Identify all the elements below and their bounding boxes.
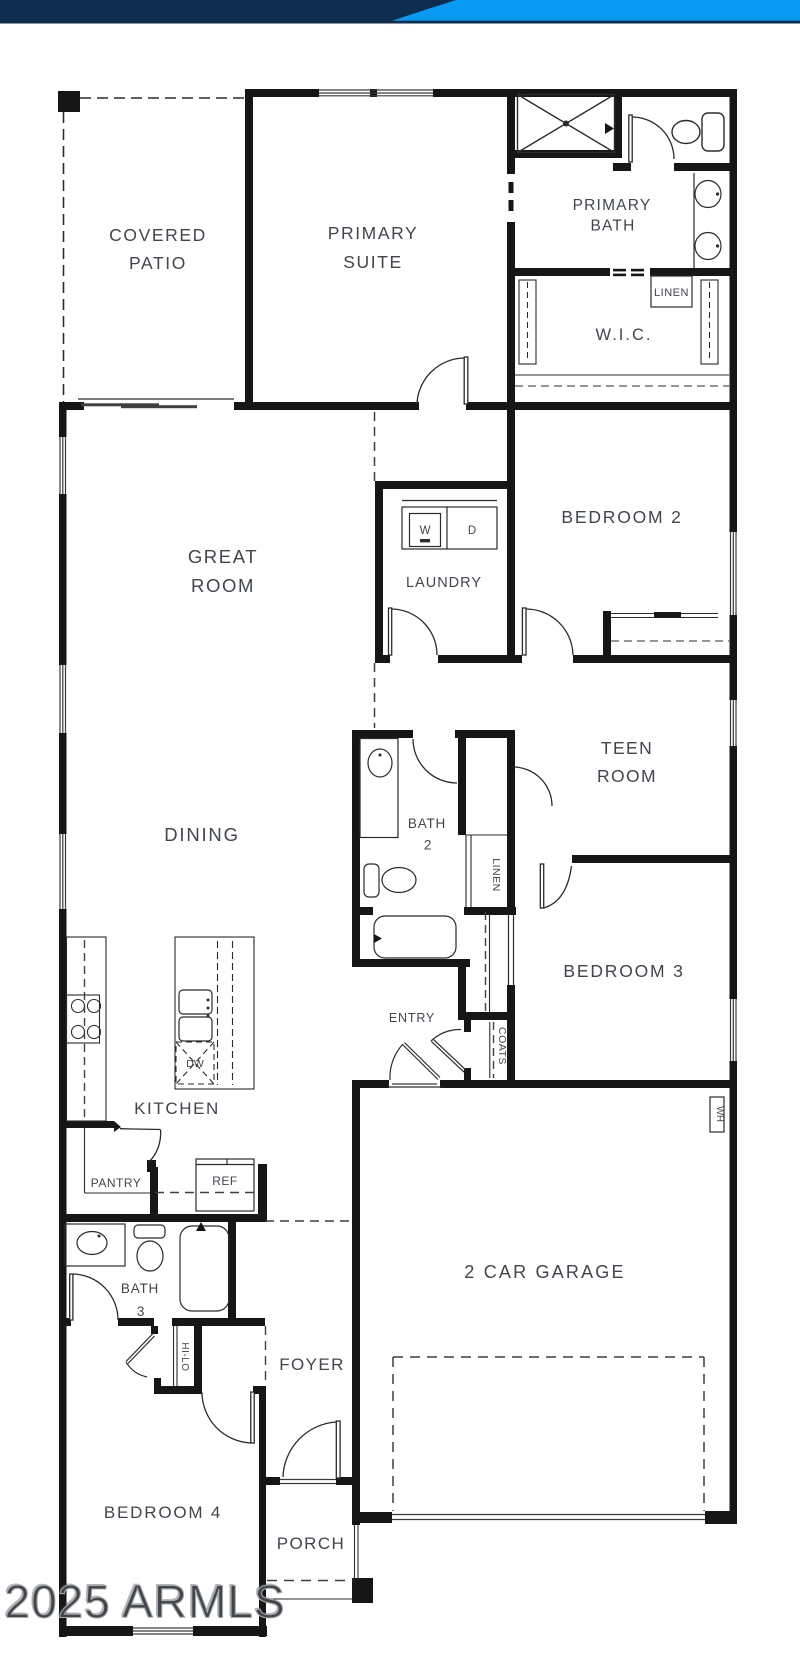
svg-text:LINEN: LINEN <box>490 858 502 891</box>
svg-text:BATH: BATH <box>121 1281 159 1296</box>
svg-text:KITCHEN: KITCHEN <box>134 1099 220 1118</box>
svg-text:HI-LO: HI-LO <box>179 1342 190 1371</box>
svg-text:ROOM: ROOM <box>597 766 657 786</box>
svg-text:REF: REF <box>212 1174 238 1188</box>
svg-text:2 CAR GARAGE: 2 CAR GARAGE <box>464 1262 625 1282</box>
svg-text:BEDROOM 2: BEDROOM 2 <box>561 507 682 527</box>
svg-text:BATH: BATH <box>591 218 636 235</box>
svg-text:ENTRY: ENTRY <box>389 1011 435 1025</box>
svg-text:GREAT: GREAT <box>188 546 258 567</box>
svg-text:PANTRY: PANTRY <box>91 1176 142 1190</box>
svg-text:ROOM: ROOM <box>191 575 255 596</box>
svg-text:W: W <box>420 525 431 537</box>
svg-text:DINING: DINING <box>164 824 240 845</box>
svg-text:TEEN: TEEN <box>601 738 653 758</box>
svg-text:FOYER: FOYER <box>279 1355 345 1374</box>
svg-text:WH: WH <box>714 1106 725 1122</box>
svg-text:2: 2 <box>424 838 432 853</box>
svg-text:2025 ARMLS: 2025 ARMLS <box>5 1576 286 1628</box>
svg-text:LINEN: LINEN <box>654 287 689 299</box>
svg-text:BEDROOM 3: BEDROOM 3 <box>563 961 684 981</box>
svg-text:COATS: COATS <box>496 1027 508 1065</box>
svg-text:SUITE: SUITE <box>343 252 403 272</box>
svg-text:BATH: BATH <box>408 816 446 831</box>
svg-text:COVERED: COVERED <box>109 225 207 245</box>
svg-text:PATIO: PATIO <box>129 253 187 273</box>
svg-text:PRIMARY: PRIMARY <box>573 197 652 214</box>
svg-text:W.I.C.: W.I.C. <box>596 326 653 344</box>
svg-text:3: 3 <box>137 1304 145 1319</box>
svg-text:PORCH: PORCH <box>277 1534 345 1553</box>
svg-text:D: D <box>468 525 476 537</box>
svg-text:DW: DW <box>186 1058 204 1070</box>
svg-text:BEDROOM 4: BEDROOM 4 <box>104 1503 222 1522</box>
svg-text:LAUNDRY: LAUNDRY <box>406 575 482 591</box>
svg-text:PRIMARY: PRIMARY <box>328 223 419 243</box>
